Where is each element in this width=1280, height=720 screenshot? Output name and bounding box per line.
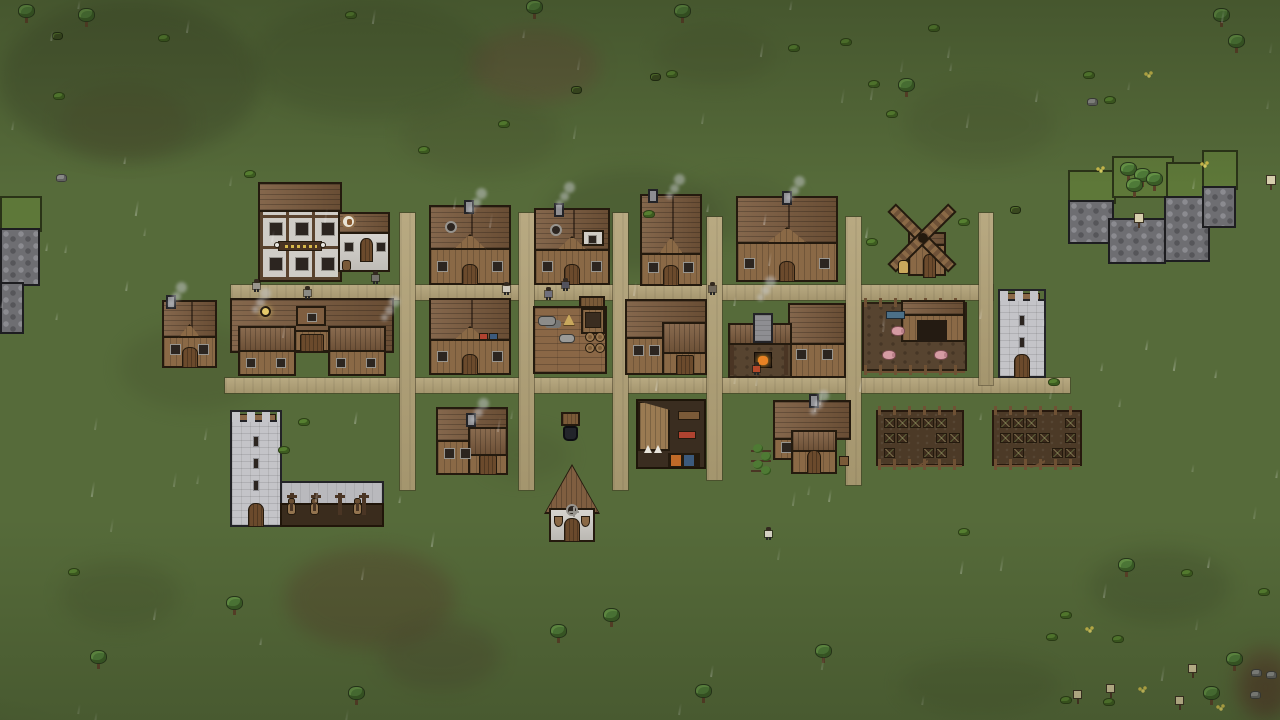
rain-streak <box>45 242 48 251</box>
rain-streak <box>431 531 435 547</box>
building-west-keep[interactable] <box>230 410 282 527</box>
sapling <box>1106 684 1115 698</box>
rain-streak <box>947 45 951 58</box>
tree <box>348 686 365 705</box>
crop-plot[interactable] <box>1065 433 1076 443</box>
rain-streak <box>789 0 792 10</box>
rock <box>1250 691 1261 699</box>
crop-plot[interactable] <box>936 418 947 428</box>
shed-roof <box>901 300 965 316</box>
sign-end-cap <box>320 242 326 248</box>
building-tannery[interactable] <box>636 399 706 469</box>
character-villager-8[interactable] <box>765 527 772 540</box>
tomato-plant[interactable] <box>753 444 763 453</box>
window <box>633 345 644 356</box>
arrow-slit <box>253 480 259 491</box>
crop-plot[interactable] <box>884 448 895 458</box>
crop-plot[interactable] <box>1013 448 1024 458</box>
smoke-puff <box>560 192 569 201</box>
rock <box>1087 98 1098 106</box>
rose-window <box>566 504 578 516</box>
rain-streak <box>1161 665 1165 681</box>
forge-chimney <box>753 313 773 343</box>
window <box>321 222 335 236</box>
bush <box>1060 696 1072 704</box>
wall-left <box>625 337 664 375</box>
water-trough[interactable] <box>886 311 905 319</box>
east-plateau-grass-top <box>1202 150 1238 190</box>
character-villager-7[interactable] <box>709 282 716 295</box>
rain-streak <box>865 226 868 238</box>
rain-streak <box>1275 469 1278 478</box>
shield-window <box>581 516 590 527</box>
tree <box>1146 172 1163 191</box>
window <box>366 358 376 368</box>
berry-bush <box>1010 206 1021 214</box>
berry-bush <box>571 86 582 94</box>
rain-streak <box>110 518 114 532</box>
rain-streak <box>1145 339 1148 350</box>
smoke-puff <box>172 292 181 301</box>
bush <box>666 70 678 78</box>
character-villager-5[interactable] <box>545 287 552 300</box>
crop-plot[interactable] <box>910 418 921 428</box>
work-table[interactable] <box>678 411 700 420</box>
gable-roof <box>791 430 837 452</box>
crop-plot[interactable] <box>1065 418 1076 428</box>
wing-roof <box>328 326 386 352</box>
char-leg <box>563 288 565 291</box>
cloth-orange <box>671 455 681 466</box>
bush <box>1048 378 1060 386</box>
sign-text-pixels <box>285 245 317 248</box>
crop-plot[interactable] <box>1026 433 1037 443</box>
bush <box>840 38 852 46</box>
crop-plot[interactable] <box>936 433 947 443</box>
crop-plot[interactable] <box>1000 418 1011 428</box>
rock <box>1266 671 1277 679</box>
tree-canopy <box>550 624 567 638</box>
window <box>683 262 694 273</box>
tree-canopy <box>90 650 107 664</box>
window <box>295 222 309 236</box>
chimney-smoke <box>470 400 490 426</box>
sapling-top <box>1073 690 1082 699</box>
crop-plot[interactable] <box>1052 448 1063 458</box>
bush <box>298 418 310 426</box>
bush <box>928 24 940 32</box>
crop-plot[interactable] <box>897 418 908 428</box>
rain-streak <box>792 491 796 506</box>
pig-snout <box>892 353 895 357</box>
building-windmill[interactable] <box>880 196 956 276</box>
crop-plot[interactable] <box>1000 433 1011 443</box>
horse[interactable] <box>352 498 363 515</box>
dormer-window <box>588 235 597 244</box>
front-wing <box>662 322 707 375</box>
building-house-mid-2[interactable] <box>625 299 707 375</box>
sapling-top <box>1106 684 1115 693</box>
rain-streak <box>777 547 781 560</box>
west-cliff-rockface <box>0 228 40 286</box>
tree <box>1126 178 1143 197</box>
pig[interactable] <box>891 326 905 336</box>
crop-plot[interactable] <box>923 418 934 428</box>
building-house-mid-1[interactable] <box>429 298 511 375</box>
ground-patch <box>60 85 190 160</box>
barrel[interactable] <box>342 260 351 271</box>
east-plateau-rockface <box>1202 186 1236 228</box>
window <box>321 257 335 271</box>
sign-plate <box>1266 175 1276 185</box>
char-leg <box>305 296 307 299</box>
grain-sack[interactable] <box>898 260 909 274</box>
chimney-smoke <box>556 184 576 210</box>
horse[interactable] <box>286 498 297 515</box>
tree <box>603 608 620 627</box>
tree-canopy <box>898 78 915 92</box>
barrel[interactable] <box>595 332 605 342</box>
door[interactable] <box>779 261 795 282</box>
road-lane-1 <box>400 213 415 490</box>
tree <box>226 596 243 615</box>
pen-rail <box>864 371 965 373</box>
bush <box>1181 569 1193 577</box>
drying-rack[interactable] <box>668 453 700 467</box>
bush <box>345 11 357 19</box>
door[interactable] <box>462 264 478 285</box>
crop-plot[interactable] <box>1013 418 1024 428</box>
ground-patch <box>400 95 560 175</box>
market-goods-red[interactable] <box>479 333 488 340</box>
crop-plot[interactable] <box>1039 433 1050 443</box>
window <box>591 261 602 272</box>
horse-mane <box>356 503 359 511</box>
char-leg <box>710 292 712 295</box>
crop-plot[interactable] <box>897 433 908 443</box>
rain-streak <box>123 156 126 164</box>
barn-door[interactable] <box>479 455 497 475</box>
wooden-sign[interactable] <box>1266 175 1276 190</box>
supply-crate[interactable] <box>561 412 580 426</box>
char-leg <box>754 372 756 375</box>
arrow-slit <box>1019 315 1025 326</box>
flower-patch <box>1138 686 1148 693</box>
smoke-puff <box>478 398 489 409</box>
arrow-slit <box>1019 337 1025 348</box>
window <box>819 258 830 269</box>
sign-end-cap <box>274 242 280 248</box>
bush <box>498 120 510 128</box>
game-viewport <box>0 0 1280 720</box>
rain-streak <box>173 472 177 487</box>
char-head <box>254 279 259 283</box>
tree <box>1226 652 1243 671</box>
rain-streak <box>1127 81 1130 90</box>
barrel[interactable] <box>585 332 595 342</box>
char-head <box>766 527 771 531</box>
building-smithy[interactable] <box>728 300 846 378</box>
tree-canopy <box>1126 178 1143 192</box>
crop-plot[interactable] <box>884 433 895 443</box>
arrow-slit <box>253 458 259 469</box>
chimney-smoke <box>786 178 806 204</box>
building-house-north-2[interactable] <box>534 208 610 285</box>
window <box>648 262 659 273</box>
tree <box>90 650 107 669</box>
smoke-puff <box>556 200 563 207</box>
crop-plot[interactable] <box>1026 418 1037 428</box>
rain-streak <box>91 481 95 497</box>
character-villager-4[interactable] <box>503 282 510 295</box>
roof <box>788 303 846 345</box>
bush <box>1046 633 1058 641</box>
bush <box>788 44 800 52</box>
building-farm-field-2[interactable] <box>992 406 1082 470</box>
character-villager-6[interactable] <box>562 278 569 291</box>
rain-streak <box>960 560 964 574</box>
wing-roof <box>662 322 707 354</box>
rain-streak <box>1191 464 1194 472</box>
rain-streak <box>1269 42 1272 53</box>
annex-door[interactable] <box>360 238 373 262</box>
horse-mane <box>290 503 293 511</box>
crop-plot[interactable] <box>949 433 960 443</box>
barrel[interactable] <box>585 343 595 353</box>
shed-roof <box>585 312 601 328</box>
wing-roof <box>468 427 508 456</box>
rain-streak <box>1100 362 1103 371</box>
tree-canopy <box>78 8 95 22</box>
char-leg <box>308 296 310 299</box>
window <box>492 351 503 362</box>
double-door[interactable] <box>300 334 324 352</box>
tree <box>898 78 915 97</box>
rain-streak <box>94 417 98 430</box>
rain-streak <box>196 474 199 484</box>
character-villager-2[interactable] <box>304 286 311 299</box>
rain-streak <box>841 88 845 103</box>
sapling-top <box>1188 664 1197 673</box>
flower-patch <box>1085 626 1095 633</box>
wooden-sign[interactable] <box>1134 213 1144 228</box>
tree-canopy <box>18 4 35 18</box>
door[interactable] <box>807 450 821 474</box>
church-door[interactable] <box>564 518 580 542</box>
smoke-puff <box>176 282 187 293</box>
rain-streak <box>1000 555 1004 571</box>
window <box>796 349 807 360</box>
sign-board <box>579 296 605 308</box>
pig[interactable] <box>882 350 896 360</box>
tree <box>526 0 543 19</box>
sapling <box>1188 664 1197 678</box>
crop-plot[interactable] <box>884 418 895 428</box>
rain-streak <box>229 175 232 186</box>
crate[interactable] <box>839 456 849 466</box>
building-house-garden[interactable] <box>747 400 851 474</box>
tavern-sign-board[interactable] <box>278 241 322 251</box>
door[interactable] <box>182 347 198 368</box>
tree <box>695 684 712 703</box>
smoke-puff <box>794 176 805 187</box>
char-head <box>546 287 551 291</box>
bush <box>53 92 65 100</box>
pig-snout <box>944 353 947 357</box>
bush <box>158 34 170 42</box>
sapling <box>1073 690 1082 704</box>
char-leg <box>504 292 506 295</box>
rain-streak <box>398 495 401 503</box>
front-gable <box>791 430 837 474</box>
bush <box>958 528 970 536</box>
rose-cross <box>569 511 579 513</box>
cauldron[interactable] <box>563 426 578 441</box>
bush <box>1060 611 1072 619</box>
canopy-post <box>730 345 734 375</box>
berry-bush <box>650 73 661 81</box>
road-lane-2 <box>519 213 534 490</box>
bush <box>418 146 430 154</box>
crop-plot[interactable] <box>1013 433 1024 443</box>
window <box>444 448 455 459</box>
tree-canopy <box>1226 652 1243 666</box>
storage-shed <box>581 308 605 334</box>
rain-streak <box>204 427 208 440</box>
barrel[interactable] <box>595 343 605 353</box>
smoke-puff <box>765 276 776 287</box>
window <box>437 261 448 272</box>
round-window <box>445 221 457 233</box>
door[interactable] <box>663 265 679 286</box>
rain-streak <box>135 200 139 216</box>
rain-streak <box>949 62 952 71</box>
smith-house <box>788 303 846 378</box>
rain-streak <box>701 112 704 124</box>
rain-streak <box>573 124 577 139</box>
rain-streak <box>1195 618 1198 630</box>
smoke-puff <box>252 306 259 313</box>
char-leg <box>566 288 568 291</box>
window <box>198 344 209 355</box>
smoke-puff <box>381 314 388 321</box>
tree-canopy <box>226 596 243 610</box>
building-pig-pen[interactable] <box>862 298 967 375</box>
tower-door[interactable] <box>1014 354 1030 378</box>
shed-opening[interactable] <box>917 320 947 342</box>
char-head <box>710 282 715 286</box>
crop-plot[interactable] <box>923 448 934 458</box>
building-tavern[interactable] <box>258 182 390 282</box>
tower-door[interactable] <box>248 503 264 527</box>
crenellation <box>998 289 1046 301</box>
window <box>170 344 181 355</box>
chimney-smoke <box>468 190 488 216</box>
pig[interactable] <box>934 350 948 360</box>
tree-canopy <box>1203 686 1220 700</box>
rain-streak <box>354 411 358 424</box>
dye-bench-red[interactable] <box>678 431 696 439</box>
tree-canopy <box>526 0 543 14</box>
window <box>276 358 286 368</box>
building-house-north-3[interactable] <box>640 194 702 286</box>
smoke-puff <box>761 286 770 295</box>
rain-streak <box>125 280 128 291</box>
door[interactable] <box>462 354 478 375</box>
tree-canopy <box>1118 558 1135 572</box>
character-villager-3[interactable] <box>372 271 379 284</box>
char-leg <box>549 297 551 300</box>
pen-fence-bottom <box>864 365 965 375</box>
rain-streak <box>828 489 832 502</box>
building-house-north-1[interactable] <box>429 205 511 285</box>
window <box>336 358 346 368</box>
crop-plot[interactable] <box>1065 448 1076 458</box>
market-goods-blue[interactable] <box>489 333 498 340</box>
dormer <box>582 230 604 246</box>
shield-window <box>554 516 563 527</box>
pig-snout <box>901 329 904 333</box>
west-cliff-rockface <box>0 282 24 334</box>
rain-streak <box>1266 99 1269 109</box>
smoke-puff <box>786 194 793 201</box>
chimney <box>648 189 658 203</box>
chimney-smoke <box>168 284 188 310</box>
building-house-west[interactable] <box>162 300 217 368</box>
window <box>246 358 256 368</box>
char-leg <box>376 281 378 284</box>
ground-patch <box>1243 660 1280 715</box>
window <box>744 258 755 269</box>
building-farm-field-1[interactable] <box>876 406 964 470</box>
building-house-north-4[interactable] <box>736 196 838 282</box>
smoke-puff <box>670 184 679 193</box>
building-church[interactable] <box>546 466 598 542</box>
chimney-smoke <box>666 176 686 202</box>
tavern-main-hall <box>258 182 342 282</box>
berry-bush <box>52 32 63 40</box>
flower-patch <box>1144 71 1154 78</box>
building-stock-deck[interactable] <box>533 300 607 374</box>
building-east-tower[interactable] <box>998 289 1046 378</box>
char-leg <box>769 537 771 540</box>
hanging-round-sign[interactable] <box>341 214 356 229</box>
rain-streak <box>11 120 14 130</box>
east-plateau-grass-top <box>1068 170 1116 204</box>
smoke-puff <box>790 186 799 195</box>
sign-emblem <box>347 219 352 225</box>
stone-pile[interactable] <box>559 334 575 343</box>
crop-plot[interactable] <box>936 448 947 458</box>
stone-pile[interactable] <box>538 316 556 326</box>
char-head <box>305 286 310 290</box>
building-well-stall[interactable] <box>561 412 580 441</box>
barn-door[interactable] <box>676 355 694 375</box>
window <box>649 345 660 356</box>
bush <box>1258 588 1270 596</box>
tomato-plant[interactable] <box>761 452 771 461</box>
rain-streak <box>710 665 713 677</box>
crenellation <box>230 410 282 422</box>
char-head <box>563 278 568 282</box>
window <box>376 242 386 252</box>
tomato-plant[interactable] <box>761 466 771 475</box>
bush <box>1104 96 1116 104</box>
smoke-puff <box>470 416 477 423</box>
road-lane-6 <box>979 213 993 385</box>
char-head <box>373 271 378 275</box>
field-fence-top <box>878 406 962 415</box>
